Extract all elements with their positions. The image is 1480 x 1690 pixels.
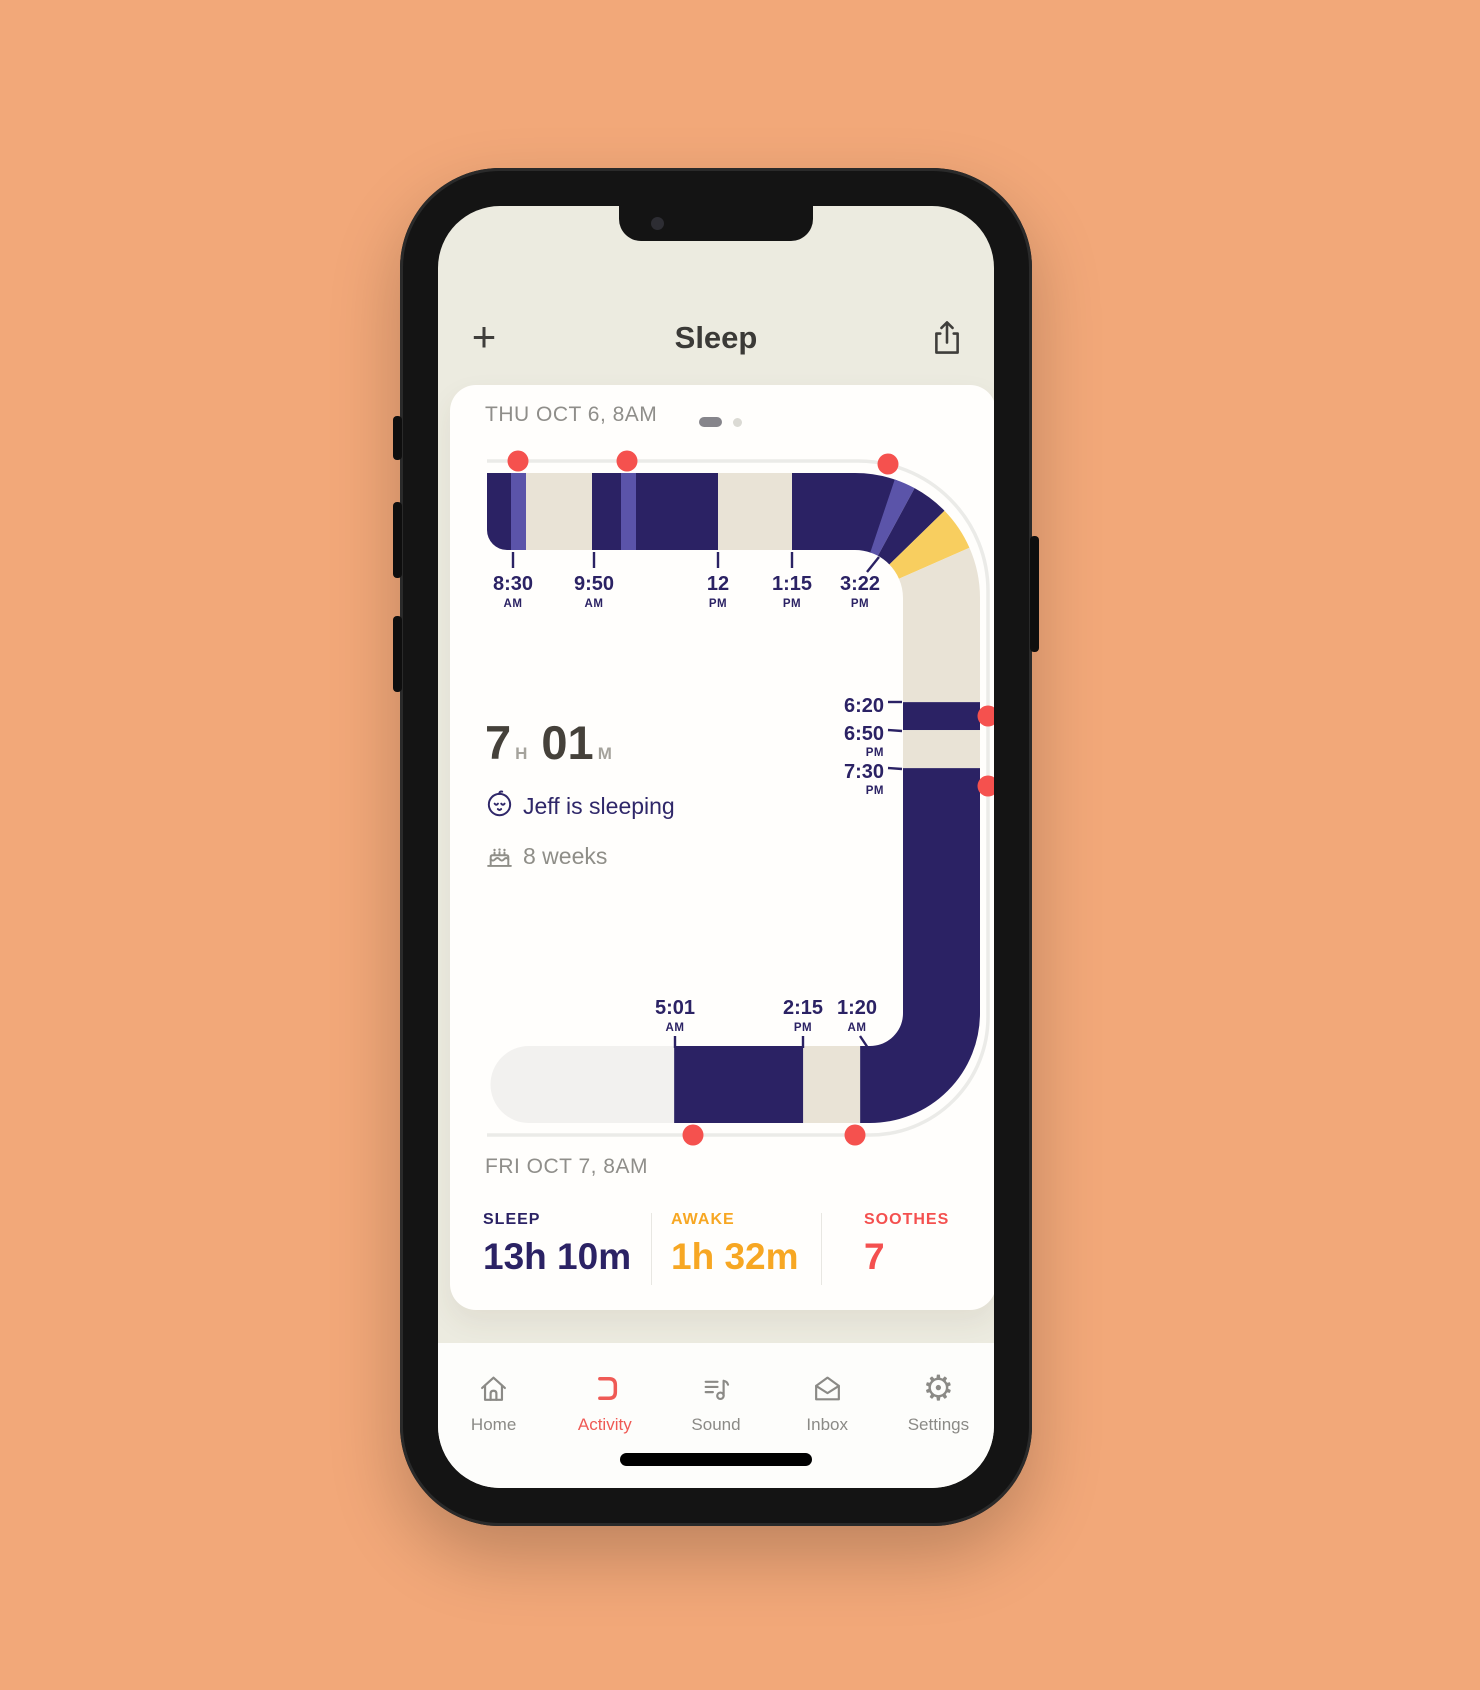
tick-time-label: 6:50	[844, 723, 884, 745]
tick-unit-label: PM	[783, 598, 801, 610]
phone-frame: + Sleep	[400, 168, 1032, 1526]
background: + Sleep	[0, 0, 1480, 1690]
tick-unit-label: PM	[866, 747, 884, 759]
tick-time-label: 1:20	[837, 997, 877, 1019]
date-range-end: FRI OCT 7, 8AM	[485, 1155, 648, 1179]
volume-up-button	[393, 502, 402, 578]
tick-unit-label: PM	[866, 785, 884, 797]
volume-down-button	[393, 616, 402, 692]
stat-label: SLEEP	[483, 1211, 631, 1229]
activity-icon	[588, 1372, 621, 1405]
home-icon	[477, 1372, 510, 1405]
duration-minutes: 01	[541, 715, 593, 770]
tick-time-label: 7:30	[844, 761, 884, 783]
nav-item-inbox[interactable]: Inbox	[772, 1343, 883, 1488]
date-range-start: THU OCT 6, 8AM	[485, 403, 657, 427]
soothe-dot	[508, 451, 529, 472]
mute-switch	[393, 416, 402, 460]
soothe-dot	[683, 1125, 704, 1146]
pager-active-dot	[699, 417, 722, 427]
nav-label: Settings	[908, 1415, 969, 1435]
stat-divider	[821, 1213, 822, 1285]
baby-status-text: Jeff is sleeping	[523, 793, 675, 820]
page-title: Sleep	[438, 320, 994, 356]
baby-age-text: 8 weeks	[523, 843, 607, 870]
share-icon[interactable]	[928, 316, 968, 360]
duration-minutes-unit: M	[598, 744, 612, 764]
nav-label: Activity	[578, 1415, 632, 1435]
bottom-nav: Home Activity	[438, 1343, 994, 1488]
nav-label: Home	[471, 1415, 516, 1435]
tick-mark	[888, 730, 902, 731]
sleep-duration: 7 H 01 M	[485, 715, 675, 770]
birthday-cake-icon	[485, 839, 514, 874]
stat-value: 1h 32m	[671, 1236, 799, 1278]
tick-mark	[867, 557, 879, 572]
tick-time-label: 9:50	[574, 573, 614, 595]
sound-icon	[700, 1372, 733, 1405]
stat-soothes: SOOTHES 7	[864, 1211, 949, 1278]
tick-mark	[888, 768, 902, 769]
stat-value: 7	[864, 1236, 949, 1278]
stat-label: AWAKE	[671, 1211, 799, 1229]
nav-item-home[interactable]: Home	[438, 1343, 549, 1488]
soothe-dot	[845, 1125, 866, 1146]
tick-unit-label: AM	[504, 598, 523, 610]
pagination-dots[interactable]	[699, 416, 742, 428]
duration-hours: 7	[485, 715, 511, 770]
tick-unit-label: PM	[709, 598, 727, 610]
tick-unit-label: AM	[585, 598, 604, 610]
tick-time-label: 6:20	[844, 695, 884, 717]
notch	[619, 206, 813, 241]
stat-sleep: SLEEP 13h 10m	[483, 1211, 631, 1278]
phone-screen: + Sleep	[438, 206, 994, 1488]
stat-value: 13h 10m	[483, 1236, 631, 1278]
camera-dot	[651, 217, 664, 230]
nav-label: Sound	[691, 1415, 740, 1435]
tick-unit-label: PM	[851, 598, 869, 610]
sleep-card[interactable]: 8:30AM9:50AM12PM1:15PM3:22PM6:206:50PM7:…	[450, 385, 994, 1310]
tick-time-label: 5:01	[655, 997, 695, 1019]
sleep-summary: 7 H 01 M	[485, 715, 675, 874]
gear-icon: ⚙	[922, 1372, 955, 1405]
tick-time-label: 2:15	[783, 997, 823, 1019]
tick-time-label: 12	[707, 573, 729, 595]
stat-awake: AWAKE 1h 32m	[671, 1211, 799, 1278]
nav-item-settings[interactable]: ⚙ Settings	[883, 1343, 994, 1488]
tick-time-label: 3:22	[840, 573, 880, 595]
pager-inactive-dot	[733, 418, 742, 427]
baby-status-row: Jeff is sleeping	[485, 789, 675, 824]
power-button	[1030, 536, 1039, 652]
tick-time-label: 8:30	[493, 573, 533, 595]
nav-label: Inbox	[806, 1415, 848, 1435]
baby-age-row: 8 weeks	[485, 839, 675, 874]
home-indicator[interactable]	[620, 1453, 812, 1466]
tick-unit-label: PM	[794, 1022, 812, 1034]
inbox-icon	[811, 1372, 844, 1405]
duration-hours-unit: H	[515, 744, 527, 764]
header: + Sleep	[438, 314, 994, 370]
nav-item-activity[interactable]: Activity	[549, 1343, 660, 1488]
baby-face-icon	[485, 789, 514, 824]
tick-unit-label: AM	[666, 1022, 685, 1034]
soothe-dot	[878, 454, 899, 475]
nav-item-sound[interactable]: Sound	[660, 1343, 771, 1488]
stat-label: SOOTHES	[864, 1211, 949, 1229]
tick-time-label: 1:15	[772, 573, 812, 595]
tick-unit-label: AM	[848, 1022, 867, 1034]
soothe-dot	[617, 451, 638, 472]
stat-divider	[651, 1213, 652, 1285]
